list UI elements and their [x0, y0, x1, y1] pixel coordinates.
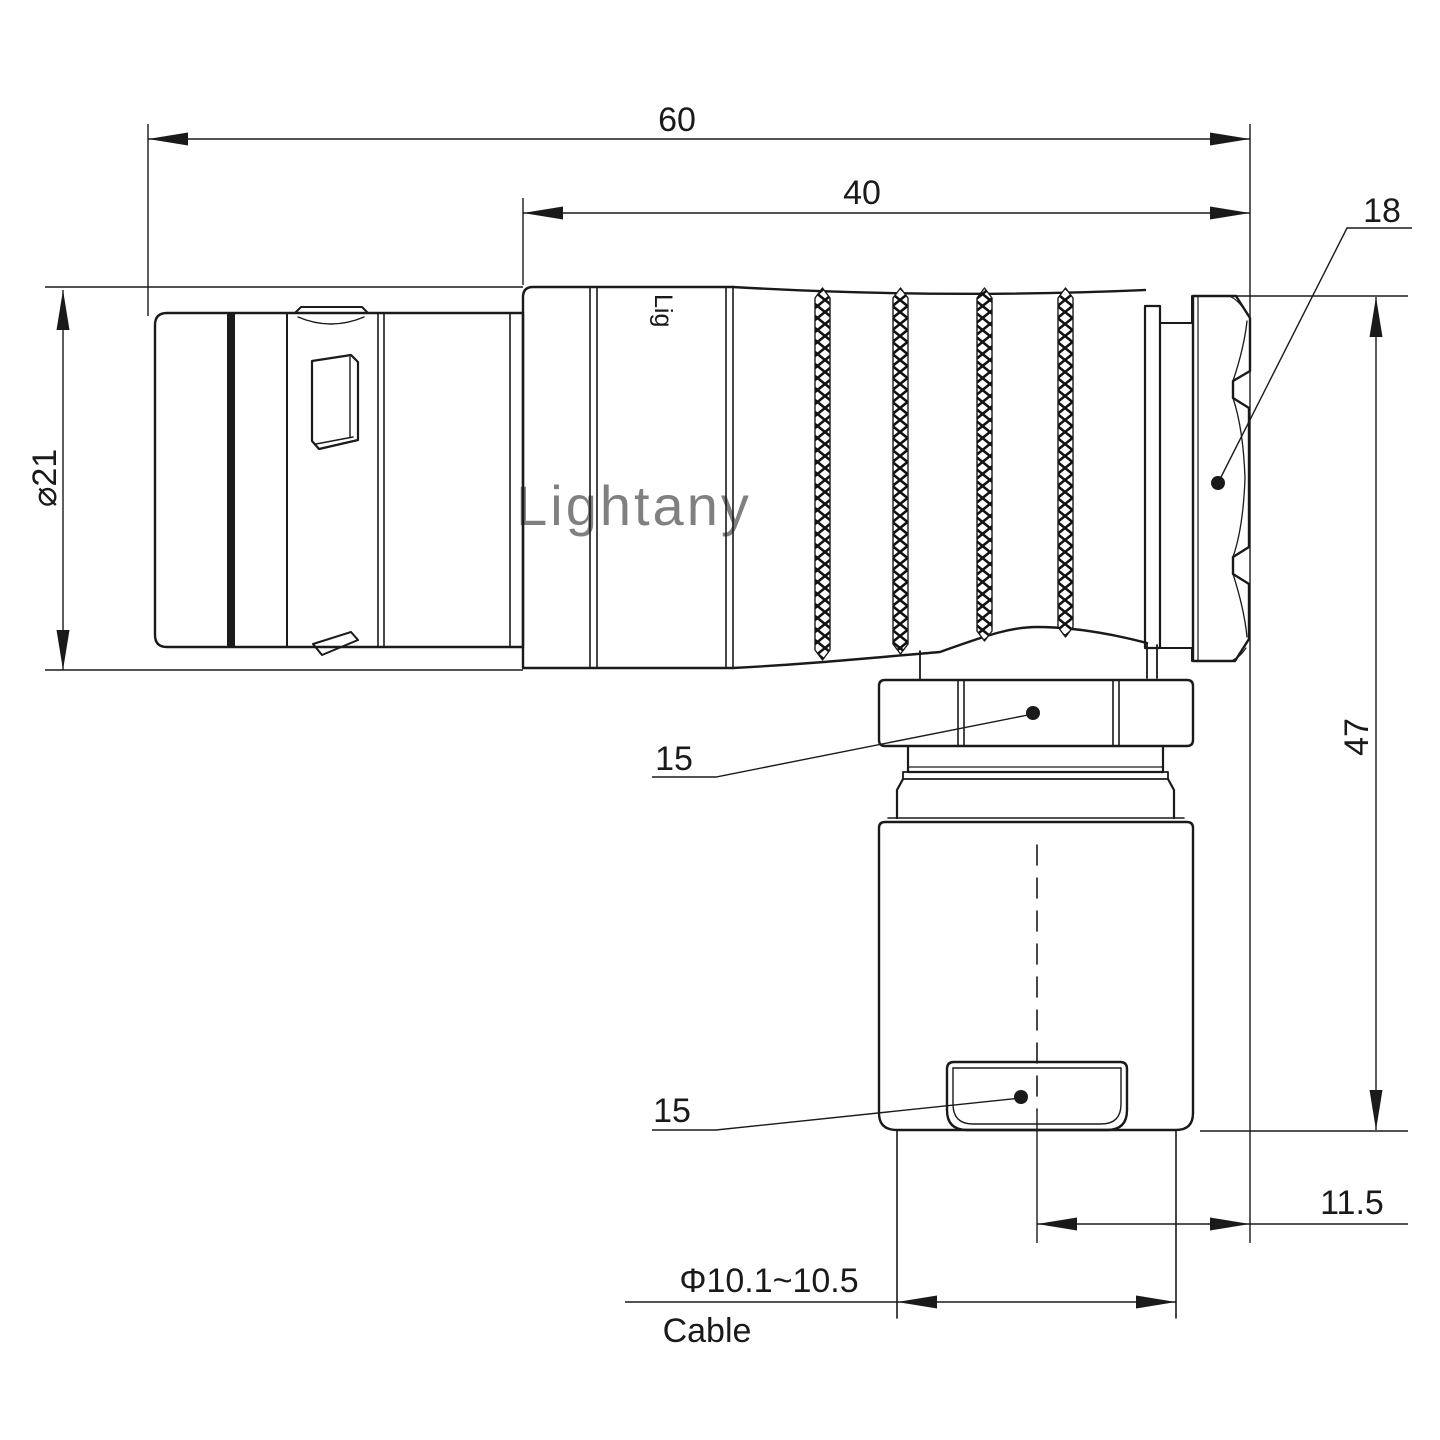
knurl-strip [977, 288, 992, 641]
dim-label-15-hex: 15 [655, 740, 693, 778]
bottom-tab [313, 632, 358, 655]
dim-label-cable-word: Cable [663, 1312, 752, 1350]
lower-barrel [879, 818, 1193, 1318]
dim-label-11-5: 11.5 [1320, 1184, 1384, 1222]
ext-dia21 [45, 287, 523, 670]
technical-drawing-canvas: Lightany Lig 60 40 18 ⌀21 47 15 15 11.5 … [0, 0, 1440, 1440]
dimension-arrows [57, 133, 1383, 1309]
dim-label-47: 47 [1338, 718, 1376, 756]
knurled-barrel [733, 287, 1157, 680]
watermark-text: Lightany [516, 474, 752, 537]
connector-drawing-svg: Lightany Lig 60 40 18 ⌀21 47 15 15 11.5 … [0, 0, 1440, 1440]
leader-15-clamp [652, 1098, 1021, 1130]
dim-label-40: 40 [843, 174, 881, 212]
dim-label-cable-range: Φ10.1~10.5 [679, 1262, 858, 1300]
step-ring [1145, 296, 1192, 661]
knurl-strip [1058, 288, 1073, 637]
connector-body [155, 287, 1250, 1318]
knurl-strip [815, 288, 830, 660]
shell-dark-band [227, 313, 235, 647]
dim-label-18: 18 [1363, 192, 1401, 230]
elbow-shoulder-curve [733, 627, 1147, 668]
leader-dot-15-hex [1026, 706, 1040, 720]
leader-dot-18 [1211, 476, 1225, 490]
plug-shell [155, 307, 523, 655]
leader-dot-15-clamp [1014, 1090, 1028, 1104]
body-print-text: Lig [649, 294, 677, 327]
bayonet-window [312, 355, 358, 449]
knurl-strip [893, 288, 908, 654]
gland-steps [897, 746, 1174, 818]
dim-label-60: 60 [658, 101, 696, 139]
dim-label-15-clamp: 15 [653, 1092, 691, 1130]
dim-label-dia21: ⌀21 [26, 449, 64, 507]
